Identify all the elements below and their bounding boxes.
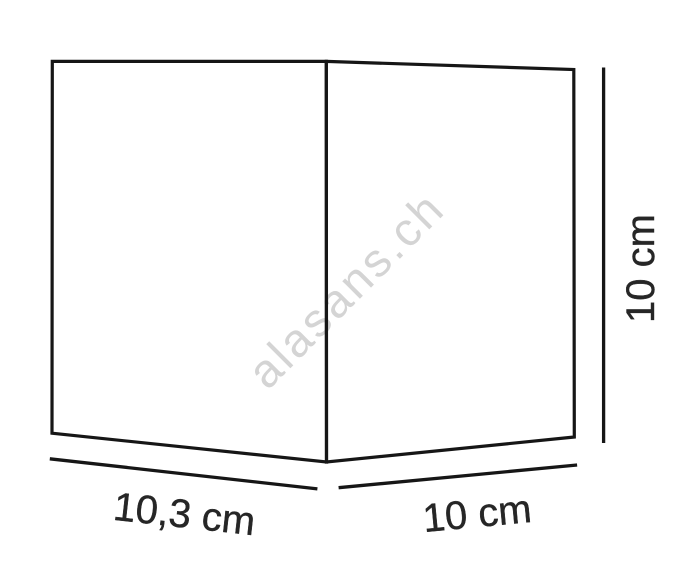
svg-text:alasans.ch: alasans.ch	[237, 181, 455, 399]
svg-text:10 cm: 10 cm	[421, 487, 534, 541]
svg-text:10,3 cm: 10,3 cm	[111, 485, 257, 544]
svg-text:10 cm: 10 cm	[619, 214, 663, 323]
